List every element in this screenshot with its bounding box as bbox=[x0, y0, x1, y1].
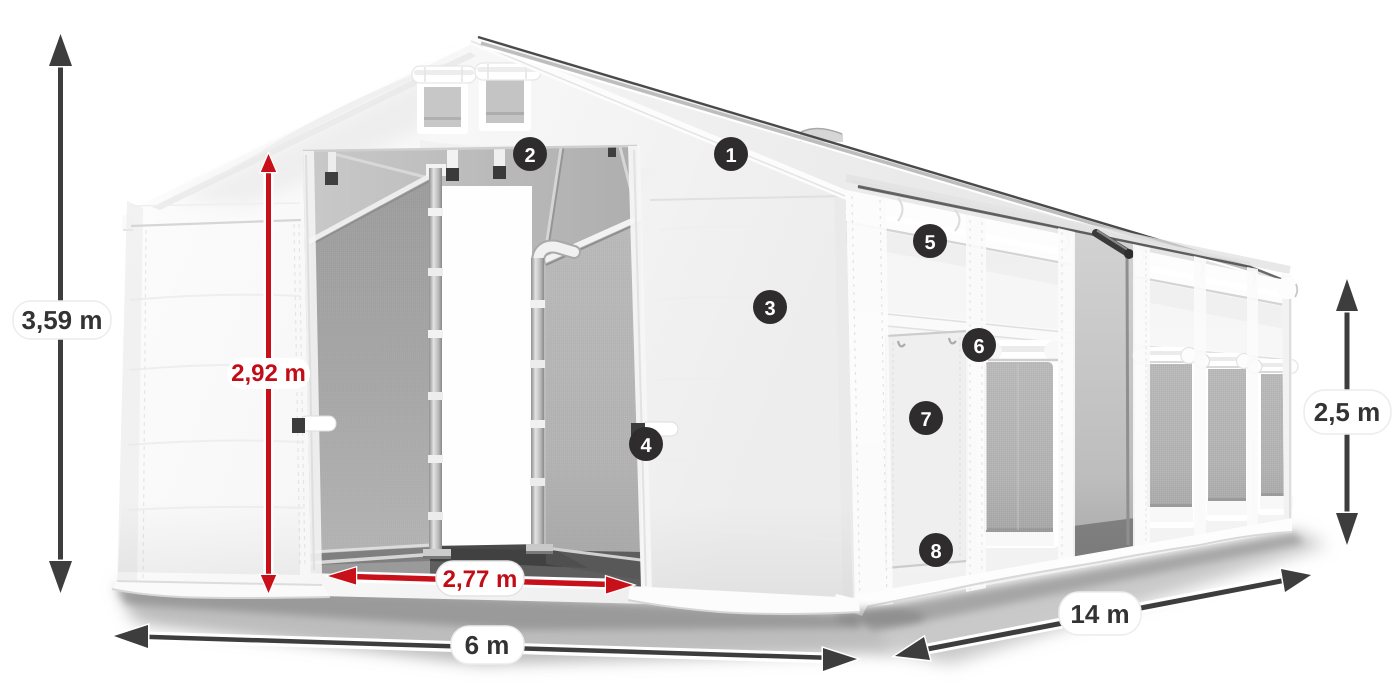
svg-text:2: 2 bbox=[524, 145, 535, 167]
svg-text:6 m: 6 m bbox=[465, 630, 510, 660]
svg-text:1: 1 bbox=[725, 145, 736, 167]
svg-text:2,5 m: 2,5 m bbox=[1314, 397, 1381, 427]
svg-text:3,59 m: 3,59 m bbox=[22, 305, 103, 335]
svg-text:14 m: 14 m bbox=[1070, 599, 1129, 629]
svg-text:3: 3 bbox=[764, 298, 775, 320]
svg-text:8: 8 bbox=[930, 541, 941, 563]
svg-text:2,92 m: 2,92 m bbox=[231, 360, 306, 387]
svg-text:5: 5 bbox=[924, 232, 935, 254]
svg-text:2,77 m: 2,77 m bbox=[443, 566, 518, 593]
svg-text:6: 6 bbox=[973, 336, 984, 358]
svg-text:7: 7 bbox=[920, 409, 931, 431]
svg-text:4: 4 bbox=[640, 435, 652, 457]
